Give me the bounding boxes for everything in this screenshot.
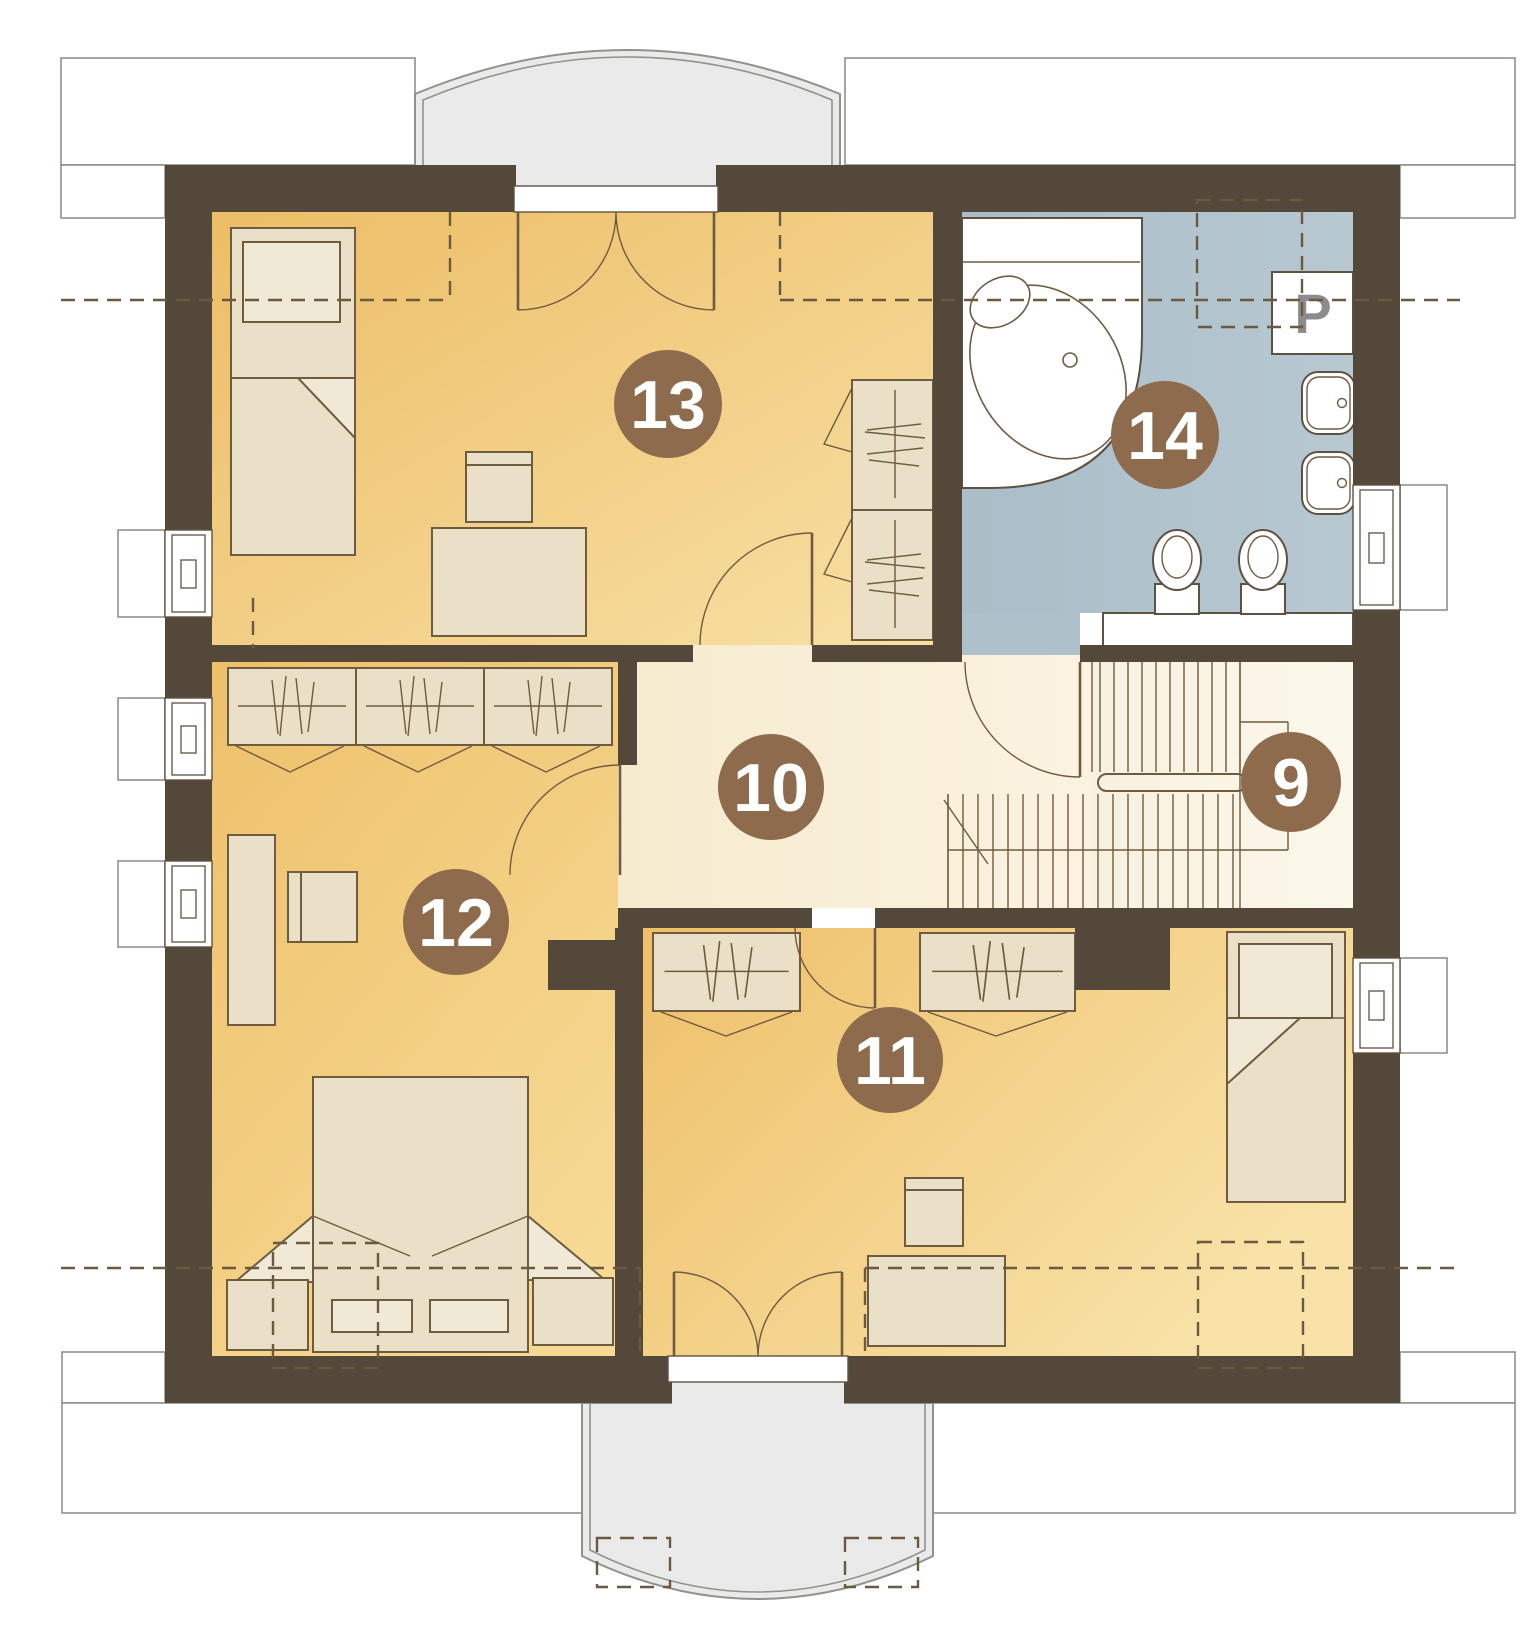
window-sill-left-2 (118, 698, 165, 780)
bed-13-pillow (243, 242, 340, 322)
eave-top-left (61, 58, 415, 165)
bed-12-pillow-left (332, 1300, 412, 1332)
wall-right-2 (1353, 610, 1400, 958)
window-left-3 (165, 861, 212, 947)
floor-plan-page: P (0, 0, 1528, 1650)
window-sill-right-2 (1400, 958, 1447, 1053)
window-sill-right-1 (1400, 485, 1447, 610)
wall-bottom-right (844, 1356, 1400, 1403)
window-left-1 (165, 530, 212, 617)
desk-11 (868, 1256, 1005, 1346)
nightstand-12-right (533, 1278, 613, 1345)
wall-right-3 (1353, 1053, 1400, 1403)
room-number: 11 (854, 1023, 926, 1099)
desk-12 (228, 835, 275, 1025)
bathroom-14-door-floor (962, 613, 1080, 655)
room-badge-10: 10 (718, 734, 824, 840)
wall-13-14 (933, 212, 962, 662)
window-sill-left-3 (118, 861, 165, 947)
eave-top-right-small (1400, 165, 1515, 218)
room-number: 12 (418, 885, 494, 961)
wall-stub-12-11 (548, 940, 615, 990)
wardrobe-13-a (852, 380, 933, 510)
eave-top-right (845, 58, 1515, 165)
room-badge-12: 12 (403, 869, 509, 975)
nightstand-12-left (227, 1280, 308, 1350)
room-number: 10 (733, 750, 809, 826)
wall-hall-11-left (618, 908, 812, 928)
wall-stub-12-hall (618, 645, 637, 765)
chair-11-back (905, 1178, 963, 1190)
balcony-door-top-sill (514, 186, 718, 212)
wall-pier-11 (1075, 928, 1170, 990)
toilet-1-bowl (1153, 530, 1201, 590)
wall-bottom-left (165, 1356, 672, 1403)
wall-hall-11-right (875, 908, 1353, 928)
window-sill-left-1 (118, 530, 165, 617)
toilet-ledge (1103, 613, 1353, 648)
room-number: 13 (630, 367, 706, 443)
floor-plan-drawing: P (0, 0, 1528, 1650)
balcony-door-bottom-sill (668, 1356, 848, 1382)
window-left-2 (165, 698, 212, 780)
bed-11-pillow (1239, 944, 1332, 1018)
eave-bottom-left-small (62, 1352, 165, 1403)
wall-14-stairs (1080, 645, 1353, 662)
desk-13 (432, 528, 586, 636)
hallway-10-floor (618, 645, 1092, 908)
bed-12-pillow-right (430, 1300, 508, 1332)
toilet-2-bowl (1239, 530, 1287, 590)
wall-left-3 (165, 780, 212, 861)
wardrobe-13-b (852, 510, 933, 640)
eave-bottom-right-small (1400, 1352, 1515, 1403)
wall-top-right (716, 165, 1400, 212)
eave-top-left-small (61, 165, 165, 218)
room-badge-14: 14 (1111, 381, 1219, 489)
chair-12-back (288, 872, 301, 942)
room-badge-9: 9 (1241, 732, 1341, 832)
wall-left-4 (165, 947, 212, 1403)
room-number: 14 (1127, 398, 1203, 474)
chair-13-back (466, 452, 532, 465)
room-number: 9 (1272, 745, 1310, 821)
wall-13-hall (812, 645, 933, 662)
window-right-1 (1353, 485, 1400, 610)
wall-left-2 (165, 617, 212, 698)
balcony-bottom-neck (672, 1380, 844, 1404)
wall-left-1 (165, 212, 212, 530)
wall-top-left (165, 165, 516, 212)
washer-label: P (1294, 282, 1331, 345)
room-badge-11: 11 (837, 1007, 943, 1113)
window-right-2 (1353, 958, 1400, 1053)
room-badge-13: 13 (614, 350, 722, 458)
wall-right-1 (1353, 212, 1400, 485)
